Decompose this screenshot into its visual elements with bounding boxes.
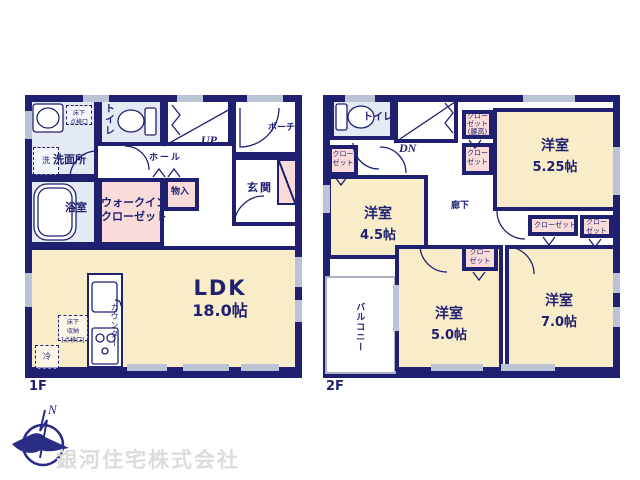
window <box>183 364 229 371</box>
toilet-1f-label: トイレ <box>101 103 114 143</box>
ldk-name: LDK <box>193 276 246 300</box>
window <box>25 111 32 139</box>
closet-b-label: クロー ゼット <box>463 149 492 167</box>
underfloor-access-label1: 床下 <box>73 110 85 117</box>
porch-label: ポーチ <box>268 123 295 134</box>
underfloor-storage-label3: [点検口] <box>62 337 85 344</box>
company-name: 銀河住宅株式会社 <box>56 444 240 474</box>
closet-e-label: クロー ゼット <box>463 248 497 266</box>
refrigerator-box: 冷 <box>35 345 59 369</box>
closet-koshidaka-label: クロー ゼット (腰高) <box>463 112 492 136</box>
staircase-1f <box>164 98 232 146</box>
window <box>613 273 620 293</box>
bedroom-7-0-size: 7.0帖 <box>541 315 577 330</box>
window <box>613 307 620 327</box>
floor1-plan: 床下 収納 [点検口] 冷 洗 床下 点検口 <box>25 95 302 378</box>
balcony-label: バルコニー <box>353 302 364 352</box>
window <box>393 285 399 331</box>
bedroom-5-0-label: 洋室 5.0帖 <box>413 303 485 344</box>
entrance-label: 玄関 <box>247 181 273 195</box>
underfloor-access-box: 床下 点検口 <box>66 105 92 125</box>
closet-a-line1: クロー <box>333 150 354 158</box>
window <box>613 147 620 195</box>
underfloor-storage-label1: 床下 <box>67 319 79 326</box>
window <box>431 364 483 371</box>
window <box>323 185 330 213</box>
bedroom-5-25-label: 洋室 5.25帖 <box>520 135 590 176</box>
bedroom-4-5-label: 洋室 4.5帖 <box>345 203 411 244</box>
bedroom-7-0-name: 洋室 <box>545 293 573 309</box>
shoe-cabinet <box>277 159 297 205</box>
closet-k-line1: クロー <box>467 112 488 120</box>
window <box>83 95 109 102</box>
closet-d-line2: ゼット <box>586 227 607 235</box>
bathroom <box>28 178 98 246</box>
window <box>295 300 302 322</box>
closet-k-line2: ゼット <box>467 120 488 128</box>
window <box>523 95 575 102</box>
floor1-label: 1F <box>29 379 47 395</box>
closet-d-line1: クロー <box>586 218 607 226</box>
closet-c-label: クローゼット <box>534 221 576 230</box>
bedroom-7-0-label: 洋室 7.0帖 <box>523 290 595 331</box>
bedroom-4-5-size: 4.5帖 <box>360 228 396 243</box>
wic-line1: ウォークイン <box>101 196 167 209</box>
floorplan-image: 床下 収納 [点検口] 冷 洗 床下 点検口 <box>0 0 640 480</box>
bath-label: 浴室 <box>65 201 87 215</box>
closet-e-line1: クロー <box>470 248 491 256</box>
ldk-label: LDK 18.0帖 <box>165 275 275 321</box>
washer-label: 洗 <box>42 156 50 165</box>
counter-label: カウンター <box>109 303 119 367</box>
underfloor-storage-label2: 収納 <box>67 328 79 335</box>
closet-b-line1: クロー <box>467 149 488 157</box>
stairs-dn-label: DN <box>399 141 416 156</box>
bedroom-5-0-size: 5.0帖 <box>431 328 467 343</box>
storage-1f-label: 物入 <box>171 187 189 198</box>
closet-d-label: クロー ゼット <box>582 218 611 236</box>
stairs-up-label: UP <box>201 133 217 148</box>
wic-line2: クローゼット <box>101 210 167 223</box>
bedroom-5-25-size: 5.25帖 <box>532 160 577 175</box>
bedroom-4-5-name: 洋室 <box>364 206 392 222</box>
closet-a-label: クロー ゼット <box>329 150 357 168</box>
underfloor-storage-box: 床下 収納 [点検口] <box>58 315 88 341</box>
bedroom-5-25-name: 洋室 <box>541 138 569 154</box>
window <box>501 364 555 371</box>
toilet-2f-label: トイレ <box>363 112 393 125</box>
corridor-label: 廊下 <box>451 201 469 212</box>
closet-e-line2: ゼット <box>470 257 491 265</box>
window <box>127 364 167 371</box>
staircase-2f <box>394 98 458 143</box>
underfloor-access-label2: 点検口 <box>70 119 88 126</box>
refrigerator-label: 冷 <box>43 352 51 361</box>
window <box>345 95 375 102</box>
window <box>177 95 203 102</box>
wic-label: ウォークイン クローゼット <box>101 196 161 224</box>
floor2-plan: トイレ DN クロー ゼット 洋室 4.5帖 クロー ゼット (腰高) クロー … <box>323 95 620 378</box>
floor2-label: 2F <box>326 379 344 395</box>
bedroom-5-0-name: 洋室 <box>435 306 463 322</box>
window <box>241 364 279 371</box>
washroom-label: 洗面所 <box>53 153 86 167</box>
closet-b-line2: ゼット <box>467 158 488 166</box>
closet-k-line3: (腰高) <box>468 128 487 136</box>
hall-label: ホール <box>149 153 182 164</box>
window <box>247 95 283 102</box>
compass-north-label: N <box>47 402 58 417</box>
window <box>295 257 302 287</box>
window <box>25 273 32 307</box>
ldk-size: 18.0帖 <box>192 301 247 320</box>
closet-a-line2: ゼット <box>333 159 354 167</box>
